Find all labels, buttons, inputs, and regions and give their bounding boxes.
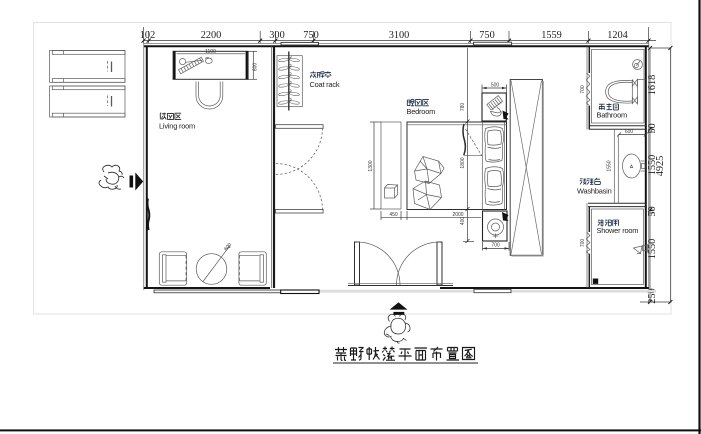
svg-text:300: 300 xyxy=(269,30,284,41)
svg-text:Coat rack: Coat rack xyxy=(310,80,340,89)
svg-text:3100: 3100 xyxy=(389,30,410,41)
svg-text:1550: 1550 xyxy=(607,160,613,171)
svg-text:500: 500 xyxy=(491,83,500,89)
svg-text:750: 750 xyxy=(479,30,494,41)
svg-text:102: 102 xyxy=(140,30,155,41)
svg-text:600: 600 xyxy=(253,63,259,72)
svg-text:1300: 1300 xyxy=(368,160,374,171)
svg-text:600: 600 xyxy=(625,129,634,135)
svg-text:1800: 1800 xyxy=(460,157,466,168)
svg-text:1559: 1559 xyxy=(541,30,562,41)
svg-text:700: 700 xyxy=(580,239,586,248)
svg-text:Bathroom: Bathroom xyxy=(597,111,627,120)
svg-text:4925: 4925 xyxy=(655,156,666,177)
svg-text:2200: 2200 xyxy=(201,30,222,41)
svg-text:700: 700 xyxy=(580,85,586,94)
svg-text:400: 400 xyxy=(460,217,466,226)
svg-text:700: 700 xyxy=(491,243,500,249)
svg-text:780: 780 xyxy=(460,103,466,112)
svg-text:Living room: Living room xyxy=(159,121,195,130)
svg-text:Shower room: Shower room xyxy=(597,226,639,235)
svg-text:1100: 1100 xyxy=(205,49,216,55)
svg-text:450: 450 xyxy=(389,212,398,218)
svg-text:750: 750 xyxy=(303,30,318,41)
svg-text:Bedroom: Bedroom xyxy=(407,107,436,116)
svg-text:Washbasin: Washbasin xyxy=(577,187,612,196)
svg-text:1204: 1204 xyxy=(607,30,628,41)
